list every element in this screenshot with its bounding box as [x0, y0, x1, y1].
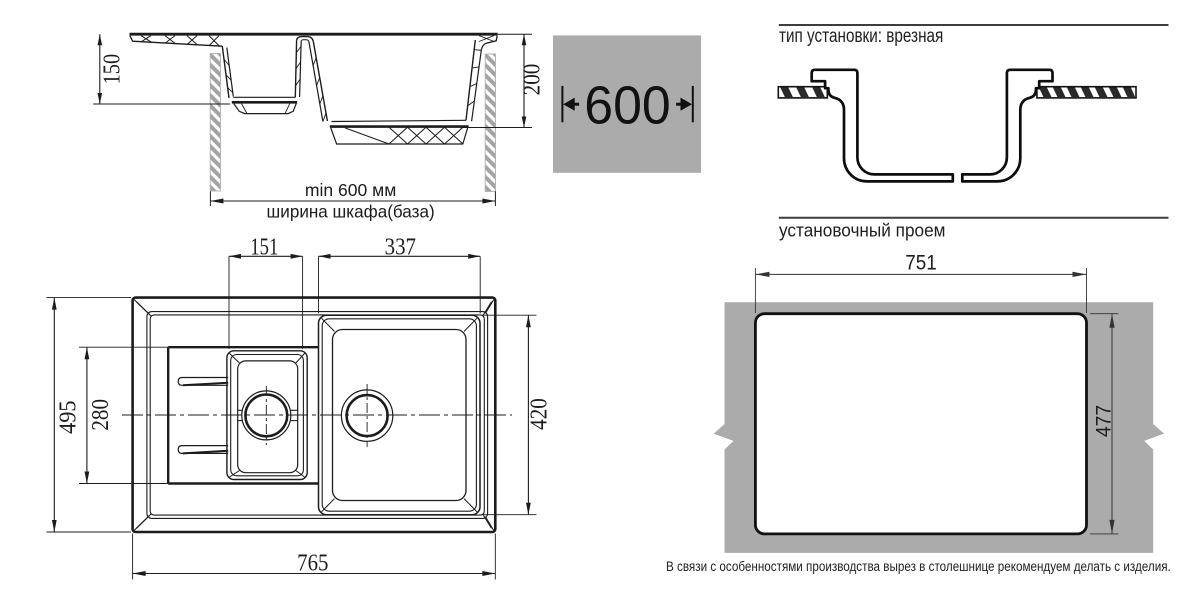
svg-text:495: 495: [55, 400, 82, 433]
svg-text:751: 751: [905, 252, 937, 275]
svg-text:280: 280: [87, 399, 114, 431]
svg-text:ширина шкафа(база): ширина шкафа(база): [267, 201, 435, 222]
svg-text:установочный проем: установочный проем: [779, 220, 946, 241]
svg-text:тип установки: врезная: тип установки: врезная: [779, 24, 943, 46]
svg-text:600: 600: [584, 75, 670, 135]
svg-text:В связи с особенностями произв: В связи с особенностями производства выр…: [666, 559, 1171, 574]
svg-text:150: 150: [98, 54, 125, 85]
svg-text:151: 151: [250, 233, 278, 260]
svg-text:337: 337: [385, 233, 416, 260]
svg-text:200: 200: [518, 64, 545, 96]
svg-text:420: 420: [525, 398, 552, 430]
svg-text:min 600 мм: min 600 мм: [305, 180, 396, 200]
svg-text:765: 765: [297, 549, 328, 576]
svg-text:477: 477: [1092, 405, 1116, 437]
